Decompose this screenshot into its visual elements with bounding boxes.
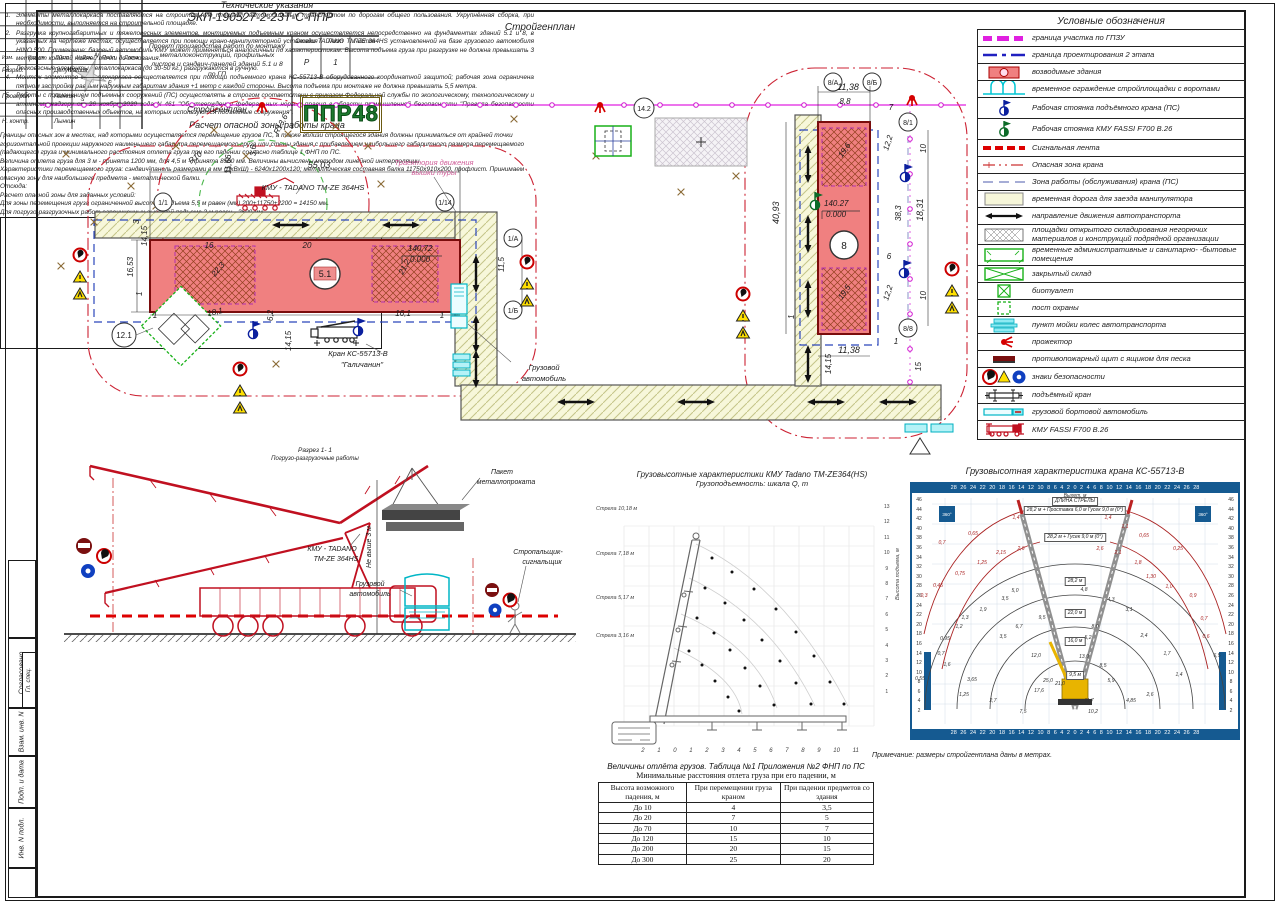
dim-label: 18,1 — [207, 306, 224, 318]
kmu-chart-dots — [596, 496, 896, 746]
lifting-crane-icon — [978, 387, 1030, 403]
load-value-label: 0,75 — [955, 571, 965, 577]
logo-text: ППР48 — [303, 101, 379, 127]
stamp-strip-inv: Инв. N подл. — [8, 808, 36, 868]
load-value-label: 1,8 — [1135, 560, 1142, 566]
boom-length-label: Стрела 3,16 м — [596, 633, 634, 639]
data-point-dot — [795, 682, 798, 685]
load-value-label: 3,65 — [967, 677, 977, 683]
dim-label: 6,2 — [266, 309, 275, 321]
table-subtitle: Минимальные расстояния отлета груза при … — [598, 771, 874, 780]
dim-label: 10 — [919, 144, 928, 153]
package-label: металлопроката — [477, 479, 536, 486]
dim-label: 16,53 — [126, 256, 135, 277]
load-value-label: 5,9 — [1108, 678, 1115, 684]
metal-package — [382, 468, 470, 531]
kmu-label: TM-ZE 364HS — [314, 556, 359, 563]
legend-row: КМУ FASSI F700 B.26 — [977, 420, 1245, 440]
load-value-label: 2,15 — [996, 550, 1006, 556]
boom-length-label: Стрела 5,17 м — [596, 595, 634, 601]
load-value-label: 4,8 — [1081, 587, 1088, 593]
load-value-label: 0,25 — [1173, 546, 1183, 552]
open-storage-platform — [655, 118, 747, 166]
crane-label: "Галичанин" — [341, 360, 383, 369]
dim-label: 1 — [440, 311, 444, 320]
legend-row: биотуалет — [977, 282, 1245, 300]
legend-row: возводимые здания — [977, 63, 1245, 81]
dim-label: 15 — [914, 362, 923, 371]
stage-header: Стадия — [292, 39, 321, 45]
company-logo: ППР48 — [300, 95, 382, 133]
load-value-label: 1,25 — [959, 692, 969, 698]
ks-chart-frame: 28 26 24 22 20 18 16 14 12 10 8 6 4 2 0 … — [910, 482, 1240, 740]
boundary-stage2-icon — [978, 49, 1030, 61]
signalman-label: сигнальщик — [522, 559, 562, 566]
temp-buildings-icon — [978, 247, 1030, 263]
load-value-label: 0,7 — [1201, 616, 1208, 622]
data-point-dot — [738, 710, 741, 713]
section-caption: Погрузо-разгрузочные работы — [271, 456, 359, 462]
chart-title: Грузовысотные характеристики КМУ Tadano … — [596, 470, 908, 479]
sheet-header: Лист — [321, 39, 350, 45]
legend-row: площадки открытого складирования негорюч… — [977, 224, 1245, 245]
data-point-dot — [704, 587, 707, 590]
load-value-label: 0,7 — [938, 651, 945, 657]
erected-building-icon — [978, 65, 1030, 79]
kmu-stand-icon — [978, 119, 1030, 139]
svg-text:1/Б: 1/Б — [508, 308, 519, 315]
person-name: Лынкин — [54, 94, 75, 100]
temp-fence-icon — [978, 81, 1030, 97]
stamp-strip-empty2 — [8, 868, 36, 898]
kmu-fassi-icon — [978, 421, 1030, 439]
table-row: До 3002520 — [599, 854, 874, 864]
data-point-dot — [759, 685, 762, 688]
svg-text:8/Б: 8/Б — [867, 80, 878, 87]
load-value-label: 1,4 — [1176, 672, 1183, 678]
legend-row: противопожарный щит с ящиком для песка — [977, 350, 1245, 368]
load-value-label: 1,4 — [1105, 515, 1112, 521]
data-point-dot — [731, 571, 734, 574]
building-number: 5.1 — [319, 269, 332, 279]
page-title: Стройгенплан — [460, 22, 620, 33]
data-point-dot — [829, 681, 832, 684]
column-header: При падении предметов со здания — [780, 783, 873, 803]
elevation-mark: 140,72 — [408, 244, 433, 253]
gate-exit-mark — [910, 438, 930, 454]
load-value-label: 13,0 — [1079, 654, 1089, 660]
dim-label: 11,5 — [497, 256, 506, 272]
stamp-strip-glspec: Гл. спец. — [22, 652, 36, 708]
height-limit-label: Не выше 3 м — [366, 526, 373, 568]
temp-road-icon — [978, 191, 1030, 207]
svg-text:1/14: 1/14 — [438, 200, 452, 207]
load-value-label: 0,65 — [968, 531, 978, 537]
data-point-dot — [724, 602, 727, 605]
legend-row: пункт мойки колес автотранспорта — [977, 316, 1245, 334]
legend-row: Опасная зона крана — [977, 156, 1245, 174]
load-value-label: 0,7 — [939, 540, 946, 546]
load-value-label: 17,6 — [1034, 688, 1044, 694]
legend-row: временные административные и санитарно- … — [977, 244, 1245, 265]
load-value-label: 1,9 — [980, 607, 987, 613]
load-value-label: 0,3 — [921, 593, 928, 599]
data-point-dot — [773, 704, 776, 707]
load-value-label: 4,85 — [1126, 698, 1136, 704]
biotoilet-icon — [978, 283, 1030, 299]
signalman-label: Стропальщик- — [513, 549, 563, 556]
truck-label: Грузовой — [528, 363, 560, 372]
stamp-strip-label: Гл. спец. — [26, 668, 32, 692]
stamp-strip-podp: Подп. и дата — [8, 756, 36, 808]
kmu-truck-elevation — [90, 466, 436, 636]
col-header: №Док. — [76, 55, 93, 61]
column-header: При перемещении груза краном — [686, 783, 780, 803]
legend-row: Рабочая стоянка подъёмного крана (ПС) — [977, 97, 1245, 119]
legend-row: подъёмный кран — [977, 386, 1245, 404]
dim-label: 18,31 — [915, 198, 925, 221]
dim-label: 7 — [889, 103, 894, 112]
svg-text:14.2: 14.2 — [637, 106, 651, 113]
dim-label: R10 — [187, 149, 205, 165]
load-value-label: 3,5 — [1000, 634, 1007, 640]
load-value-label: 4,3 — [1108, 597, 1115, 603]
ground-hatch — [64, 635, 576, 642]
kmu-label: КМУ - TADANO — [307, 546, 357, 553]
table-header-row: Высота возможного падения, м При перемещ… — [599, 783, 874, 803]
danger-zone-icon — [978, 159, 1030, 171]
svg-text:1/1: 1/1 — [158, 200, 168, 207]
safety-signs-icon — [978, 368, 1030, 386]
data-point-dot — [711, 557, 714, 560]
data-point-dot — [701, 664, 704, 667]
dim-label: 1 — [153, 311, 157, 320]
flatbed-truck-icon — [978, 405, 1030, 419]
legend-row: Сигнальная лента — [977, 139, 1245, 157]
floodlight-icon — [978, 334, 1030, 350]
dim-label: 1 — [135, 292, 144, 296]
building-number: 8 — [841, 241, 847, 252]
crane-label: Кран КС-55713-В — [328, 349, 388, 358]
trajectory-label: Траектория движения — [394, 158, 473, 167]
table-row: До 70107 — [599, 823, 874, 833]
load-value-label: 2,7 — [990, 698, 997, 704]
role-label: Н. контр. — [2, 119, 29, 125]
sheet-name: Стройгенплан — [142, 104, 292, 114]
load-value-label: 0,6 — [1203, 634, 1210, 640]
load-values: 1,40,650,72,62,151,250,750,450,31,41,10,… — [912, 484, 1238, 738]
legend-row: граница участка по ГПЗУ — [977, 29, 1245, 47]
load-value-label: 5,0 — [1012, 588, 1019, 594]
dim-label: 14,15 — [824, 353, 833, 374]
load-value-label: 1,6 — [944, 662, 951, 668]
sheet-value: 1 — [321, 58, 350, 67]
dim-label: 6 — [887, 252, 892, 261]
load-value-label: 0,9 — [1190, 593, 1197, 599]
dim-label: 11,66 — [224, 154, 233, 174]
trajectory-label: вышки туры — [412, 168, 457, 177]
load-value-label: 3,5 — [1002, 596, 1009, 602]
legend-row: временное ограждение стройплощадки с вор… — [977, 80, 1245, 98]
boundary-gpzu-icon — [978, 32, 1030, 44]
column-header: Высота возможного падения, м — [599, 783, 687, 803]
load-value-label: 1,0 — [1166, 584, 1173, 590]
load-value-label: 3,1 — [1126, 607, 1133, 613]
truck-label: автомобиль — [349, 590, 391, 598]
person-name: Депутатов — [54, 68, 88, 74]
svg-text:1/А: 1/А — [508, 236, 519, 243]
load-value-label: 2,4 — [1141, 633, 1148, 639]
data-point-dot — [779, 660, 782, 663]
data-point-dot — [714, 680, 717, 683]
data-point-dot — [727, 696, 730, 699]
package-label: Пакет — [491, 469, 513, 476]
load-value-label: 1,7 — [1164, 651, 1171, 657]
data-point-dot — [843, 703, 846, 706]
col-header: Дата — [124, 55, 139, 61]
table-row: До 2002015 — [599, 844, 874, 854]
ks-load-chart: Грузовысотная характеристика крана КС-55… — [904, 466, 1246, 764]
load-value-label: 9,5 — [1039, 615, 1046, 621]
dim-label: 1 — [787, 315, 796, 319]
x-axis-ticks: 2 1 0 1 2 3 4 5 6 7 8 9 10 11 — [612, 748, 888, 754]
stamp-strip-empty — [8, 560, 36, 638]
site-cabin — [595, 126, 631, 156]
dim-label: 3 — [132, 219, 141, 224]
load-value-label: 12,0 — [1031, 653, 1041, 659]
stamp-strip-label: Инв. N подл. — [19, 818, 26, 859]
boom-length-label: Стрела 7,18 м — [596, 551, 634, 557]
legend: Условные обозначения граница участка по … — [977, 16, 1245, 440]
legend-title: Условные обозначения — [977, 16, 1245, 27]
load-value-label: 0,45 — [933, 583, 943, 589]
svg-text:8/8: 8/8 — [903, 326, 913, 333]
dim-label: 11,38 — [837, 82, 859, 92]
load-value-label: 6,5 — [1214, 653, 1221, 659]
kmu-load-chart: Грузовысотные характеристики КМУ Tadano … — [596, 470, 908, 764]
stamp-strip-label: Взам. инв. N — [19, 712, 26, 753]
load-value-label: 10,2 — [1088, 709, 1098, 715]
elevation-mark: 140.27 — [824, 199, 849, 208]
role-label: Проверил — [2, 94, 29, 100]
load-value-label: 2,1 — [1115, 550, 1122, 556]
closed-warehouse-icon — [978, 266, 1030, 282]
dim-label: 55,03 — [308, 160, 331, 170]
work-zone-icon — [978, 176, 1030, 188]
legend-row: пост охраны — [977, 299, 1245, 317]
open-storage-icon — [978, 226, 1030, 244]
svg-text:8/1: 8/1 — [903, 120, 913, 127]
dim-label: 16 — [205, 241, 214, 250]
legend-row: граница проектирования 2 этапа — [977, 46, 1245, 64]
plan-units-note: Примечание: размеры стройгенплана даны в… — [872, 752, 1172, 759]
dim-label: 38,3 — [894, 205, 903, 221]
dim-label: 12,2 — [881, 134, 895, 152]
legend-row: прожектор — [977, 333, 1245, 351]
data-point-dot — [813, 655, 816, 658]
load-value-label: 8,5 — [1100, 663, 1107, 669]
legend-row: грузовой бортовой автомобиль — [977, 403, 1245, 421]
truck-label: Грузовой — [355, 580, 384, 588]
load-value-label: 8,0 — [1092, 624, 1099, 630]
load-value-label: 1,3 — [962, 615, 969, 621]
boom-length-label: Стрела 10,18 м — [596, 506, 637, 512]
dim-label: 1 — [894, 337, 898, 346]
legend-row: Зона работы (обслуживания) крана (ПС) — [977, 173, 1245, 191]
load-value-label: 21,0 — [1055, 681, 1065, 687]
stamp-strip-label: Подп. и дата — [19, 760, 26, 804]
data-point-dot — [753, 588, 756, 591]
data-point-dot — [761, 639, 764, 642]
table-row: До 1201510 — [599, 833, 874, 843]
legend-row: временная дорога для заезда манипулятора — [977, 190, 1245, 208]
dim-label: 10 — [919, 291, 928, 300]
data-point-dot — [810, 703, 813, 706]
truck-label: автомобиль — [522, 374, 566, 383]
project-title: Проект производства работ по монтажу мет… — [147, 42, 287, 79]
wheel-wash-icon — [978, 317, 1030, 333]
load-value-label: 2,6 — [1097, 546, 1104, 552]
document-code: ЭКП-190527-2-23Т-С-ППР — [142, 10, 379, 24]
stamp-strip-vzam: Взам. инв. N — [8, 708, 36, 756]
dim-label: 20 — [302, 241, 312, 250]
load-value-label: 2,6 — [1147, 692, 1154, 698]
sheets-header: Листов — [350, 39, 379, 45]
legend-row: Рабочая стоянка КМУ FASSI F700 B.26 — [977, 118, 1245, 140]
load-value-label: 0,95 — [940, 636, 950, 642]
load-value-label: 6,7 — [1016, 624, 1023, 630]
dim-label: 14,15 — [284, 330, 293, 351]
kmu-label: КМУ - TADANO TM-ZE 364HS — [262, 183, 365, 192]
legend-row: знаки безопасности — [977, 367, 1245, 387]
load-value-label: 1,4 — [1013, 515, 1020, 521]
load-value-label: 0,65 — [1139, 533, 1149, 539]
dim-label: 40,93 — [771, 201, 781, 224]
cargo-truck-symbol — [451, 284, 467, 328]
load-value-label: 0,55 — [915, 676, 925, 682]
load-value-label: 2,6 — [1018, 546, 1025, 552]
table-row: До 1043,5 — [599, 802, 874, 812]
col-header: Подп. — [102, 55, 117, 61]
svg-text:12.1: 12.1 — [116, 331, 132, 340]
fire-shield-icon — [978, 353, 1030, 365]
load-value-label: 1,1 — [1122, 524, 1129, 530]
load-value-label: 11,7 — [1084, 698, 1093, 704]
table-row: До 2075 — [599, 813, 874, 823]
data-point-dot — [775, 608, 778, 611]
dim-label: 12,2 — [881, 284, 895, 302]
data-point-dot — [696, 617, 699, 620]
signal-tape-icon — [978, 142, 1030, 154]
col-header: Кол.уч — [28, 55, 44, 61]
data-point-dot — [688, 650, 691, 653]
drawing-sheet: Согласовано Гл. спец. Взам. инв. N Подп.… — [0, 0, 1280, 905]
data-point-dot — [729, 649, 732, 652]
table-title: Величины отлёта грузов. Таблица №1 Прило… — [598, 762, 874, 771]
load-value-label: 1,30 — [1146, 574, 1156, 580]
chart-title: Грузовысотная характеристика крана КС-55… — [904, 466, 1246, 476]
data-point-dot — [744, 667, 747, 670]
y-axis-ticks: 13 12 11 10 9 8 7 6 5 4 3 2 1 — [884, 500, 890, 700]
guard-post-icon — [978, 300, 1030, 316]
dim-label: 16,1 — [395, 309, 411, 318]
data-point-dot — [795, 631, 798, 634]
load-value-label: 5,2 — [1085, 635, 1092, 641]
load-value-label: 7,5 — [1020, 709, 1027, 715]
chart-subtitle: Грузоподъемность: шкала Q, т — [596, 479, 908, 488]
dim-label: 11,38 — [838, 345, 860, 355]
dim-label: 8,8 — [839, 97, 851, 106]
data-point-dot — [743, 619, 746, 622]
load-value-label: 25,0 — [1043, 678, 1053, 684]
ks-crane-symbol — [311, 321, 359, 346]
traffic-arrow-icon — [978, 210, 1030, 222]
crane-stand-ps-icon — [978, 98, 1030, 118]
role-label: Разраб. — [2, 68, 24, 74]
section-caption: Разрез 1- 1 — [298, 447, 332, 454]
data-point-dot — [713, 632, 716, 635]
person-name: Лынкин — [54, 119, 75, 125]
col-header: Изм. — [2, 55, 14, 61]
load-value-label: 1,2 — [956, 624, 963, 630]
stage-value: Р — [292, 58, 321, 67]
legend-row: закрытый склад — [977, 265, 1245, 283]
section-1-1: Разрез 1- 1 Погрузо-разгрузочные работы — [60, 438, 580, 650]
dim-label: 14,15 — [140, 225, 149, 246]
y-axis-label: Высота подъема, м — [895, 548, 901, 600]
load-offset-table: Величины отлёта грузов. Таблица №1 Прило… — [598, 762, 874, 865]
load-value-label: 1,25 — [977, 560, 987, 566]
col-header: Лист — [55, 55, 69, 61]
legend-row: направление движения автотранспорта — [977, 207, 1245, 225]
dim-label: 3,6 — [249, 144, 258, 156]
